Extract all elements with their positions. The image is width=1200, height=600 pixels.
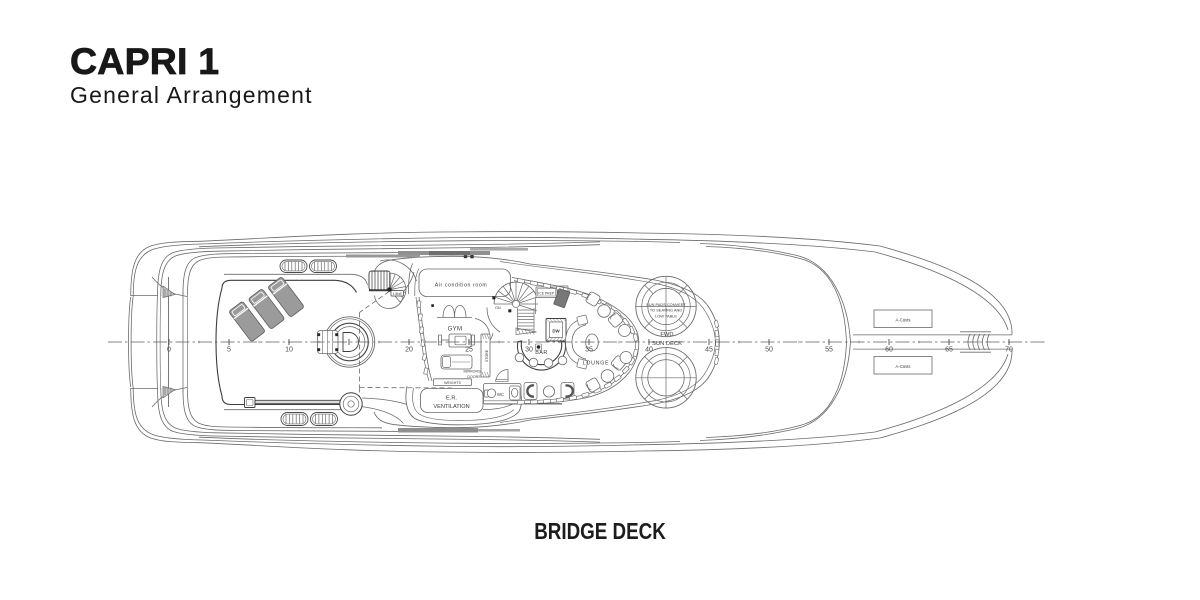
svg-text:DW: DW bbox=[552, 329, 560, 334]
svg-text:70: 70 bbox=[1005, 347, 1013, 354]
svg-text:45: 45 bbox=[705, 347, 713, 354]
svg-text:SUN PADS CONVERT: SUN PADS CONVERT bbox=[646, 302, 686, 307]
svg-text:5: 5 bbox=[227, 347, 231, 354]
svg-text:55: 55 bbox=[825, 347, 833, 354]
svg-text:E.R.: E.R. bbox=[446, 396, 457, 402]
svg-text:DOORS: DOORS bbox=[467, 375, 481, 379]
svg-text:WEIGHTS: WEIGHTS bbox=[444, 381, 461, 385]
svg-text:65: 65 bbox=[945, 347, 953, 354]
svg-text:ICE PREP.: ICE PREP. bbox=[538, 291, 555, 295]
svg-text:35: 35 bbox=[585, 347, 593, 354]
svg-text:Air condition room: Air condition room bbox=[435, 282, 488, 288]
svg-text:30: 30 bbox=[525, 347, 533, 354]
svg-text:LOUNGE: LOUNGE bbox=[583, 361, 610, 367]
svg-text:40: 40 bbox=[645, 347, 653, 354]
svg-text:STORE: STORE bbox=[485, 349, 489, 362]
svg-text:WC: WC bbox=[497, 392, 504, 397]
svg-text:A-Cüvts: A-Cüvts bbox=[896, 318, 911, 323]
svg-text:60: 60 bbox=[885, 347, 893, 354]
svg-text:BAR: BAR bbox=[535, 350, 548, 356]
svg-text:VENTILATION: VENTILATION bbox=[433, 404, 469, 410]
svg-text:A-Cüvts: A-Cüvts bbox=[896, 364, 911, 369]
svg-text:TO SEATING AND: TO SEATING AND bbox=[650, 308, 682, 313]
svg-text:GYM: GYM bbox=[448, 327, 463, 333]
svg-text:1.5kW: 1.5kW bbox=[393, 292, 402, 296]
svg-text:50: 50 bbox=[765, 347, 773, 354]
svg-text:10: 10 bbox=[285, 347, 293, 354]
svg-text:MIRRORS: MIRRORS bbox=[464, 370, 482, 374]
svg-text:FWD: FWD bbox=[660, 332, 673, 338]
svg-text:20: 20 bbox=[405, 347, 413, 354]
svg-text:0: 0 bbox=[167, 347, 171, 354]
svg-text:DN: DN bbox=[495, 306, 501, 310]
svg-text:LOW TABLE: LOW TABLE bbox=[655, 314, 677, 319]
svg-text:25: 25 bbox=[465, 347, 473, 354]
